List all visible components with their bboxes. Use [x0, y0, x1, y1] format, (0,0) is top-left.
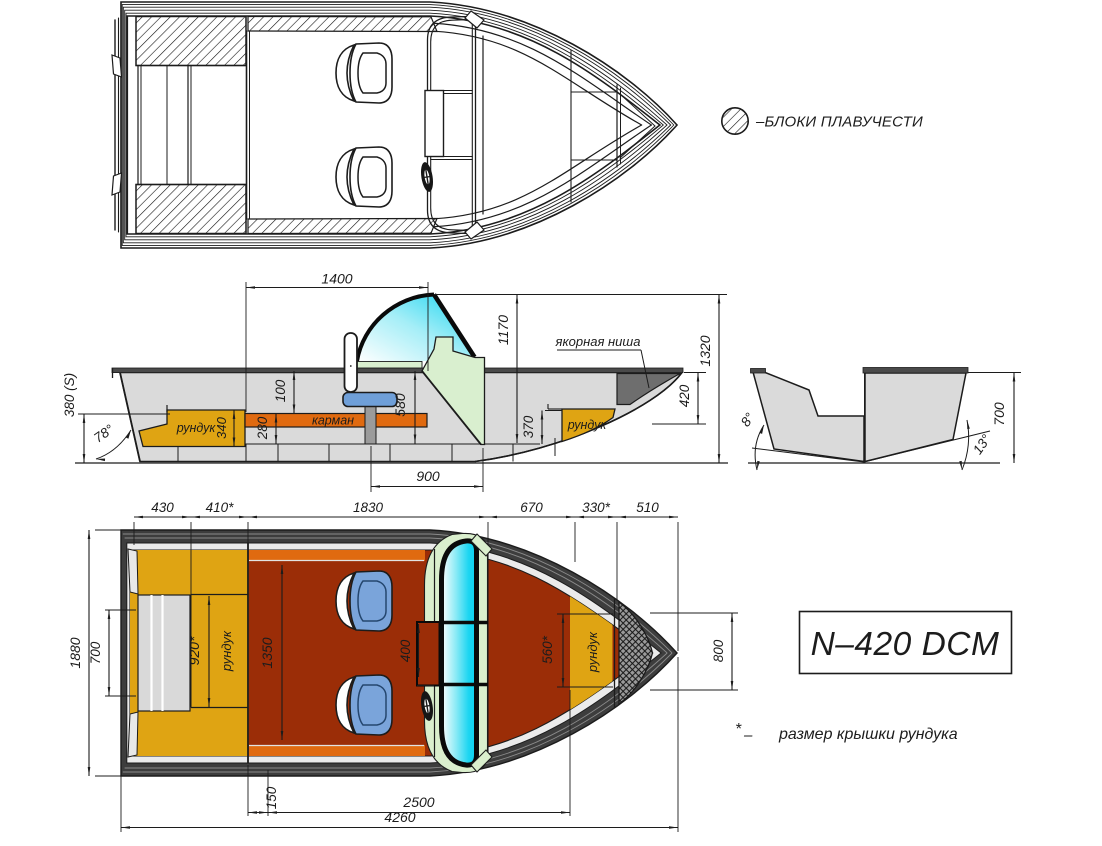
svg-text:1830: 1830: [353, 500, 384, 515]
svg-text:1350: 1350: [259, 637, 275, 668]
svg-text:380 (S): 380 (S): [62, 373, 77, 417]
svg-text:1170: 1170: [495, 315, 511, 345]
svg-text:580: 580: [392, 393, 408, 417]
svg-text:2500: 2500: [402, 794, 434, 810]
svg-text:400: 400: [398, 639, 413, 662]
svg-text:340: 340: [214, 416, 229, 438]
svg-text:N–420 DCM: N–420 DCM: [811, 626, 1000, 663]
svg-text:рундук: рундук: [585, 631, 600, 673]
svg-text:карман: карман: [312, 414, 354, 428]
svg-text:670: 670: [520, 500, 543, 515]
svg-text:размер крышки рундука: размер крышки рундука: [778, 726, 958, 743]
svg-text:700: 700: [88, 641, 103, 664]
svg-text:370: 370: [521, 415, 536, 438]
svg-text:280: 280: [255, 416, 270, 440]
svg-text:1880: 1880: [67, 637, 83, 668]
svg-text:410*: 410*: [206, 500, 235, 515]
svg-text:330*: 330*: [582, 500, 611, 515]
svg-text:510: 510: [636, 500, 659, 515]
svg-text:150: 150: [264, 786, 279, 809]
svg-text:560*: 560*: [540, 635, 555, 664]
svg-text:920*: 920*: [186, 636, 202, 665]
svg-text:1320: 1320: [697, 335, 713, 366]
svg-text:–: –: [743, 727, 753, 744]
svg-text:100: 100: [273, 379, 288, 402]
svg-text:700: 700: [991, 402, 1007, 426]
svg-text:4260: 4260: [384, 809, 415, 825]
svg-text:430: 430: [151, 500, 174, 515]
svg-text:рундук: рундук: [176, 421, 217, 435]
svg-text:рундук: рундук: [219, 630, 234, 672]
svg-text:–БЛОКИ ПЛАВУЧЕСТИ: –БЛОКИ ПЛАВУЧЕСТИ: [755, 114, 923, 131]
svg-text:900: 900: [416, 468, 440, 484]
svg-text:якорная ниша: якорная ниша: [555, 334, 641, 349]
svg-text:рундук: рундук: [567, 418, 608, 432]
svg-text:420: 420: [677, 384, 692, 407]
svg-text:800: 800: [711, 639, 726, 662]
svg-text:1400: 1400: [321, 271, 352, 287]
svg-text:*: *: [735, 721, 742, 738]
